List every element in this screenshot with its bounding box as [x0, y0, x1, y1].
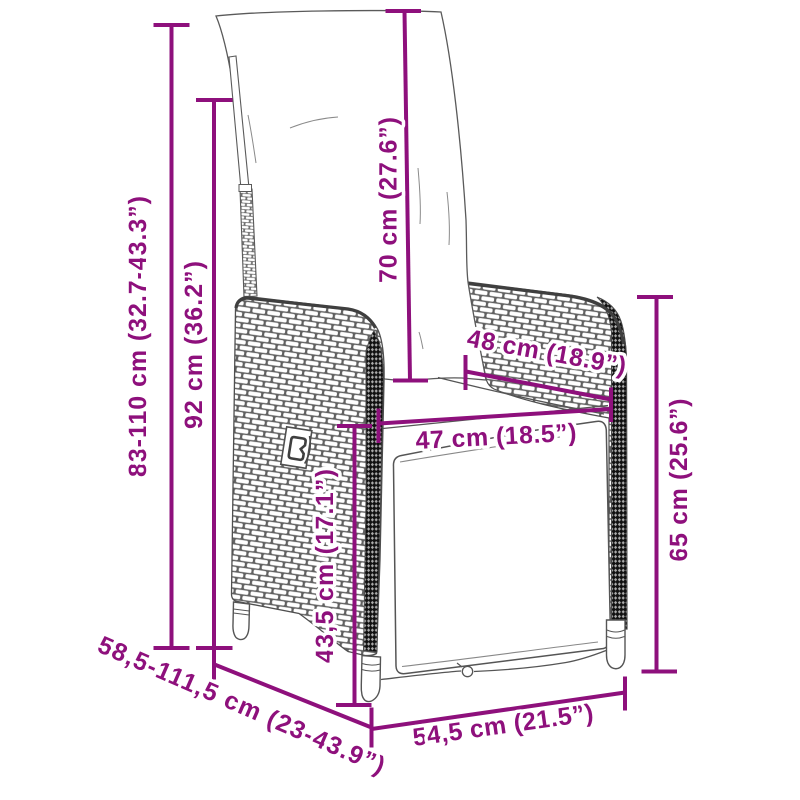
svg-text:70 cm (27.6”): 70 cm (27.6”)	[375, 117, 403, 283]
svg-text:65 cm (25.6”): 65 cm (25.6”)	[665, 399, 693, 562]
svg-text:83-110 cm (32.7-43.3”): 83-110 cm (32.7-43.3”)	[124, 196, 152, 477]
svg-text:92 cm (36.2”): 92 cm (36.2”)	[180, 261, 208, 429]
